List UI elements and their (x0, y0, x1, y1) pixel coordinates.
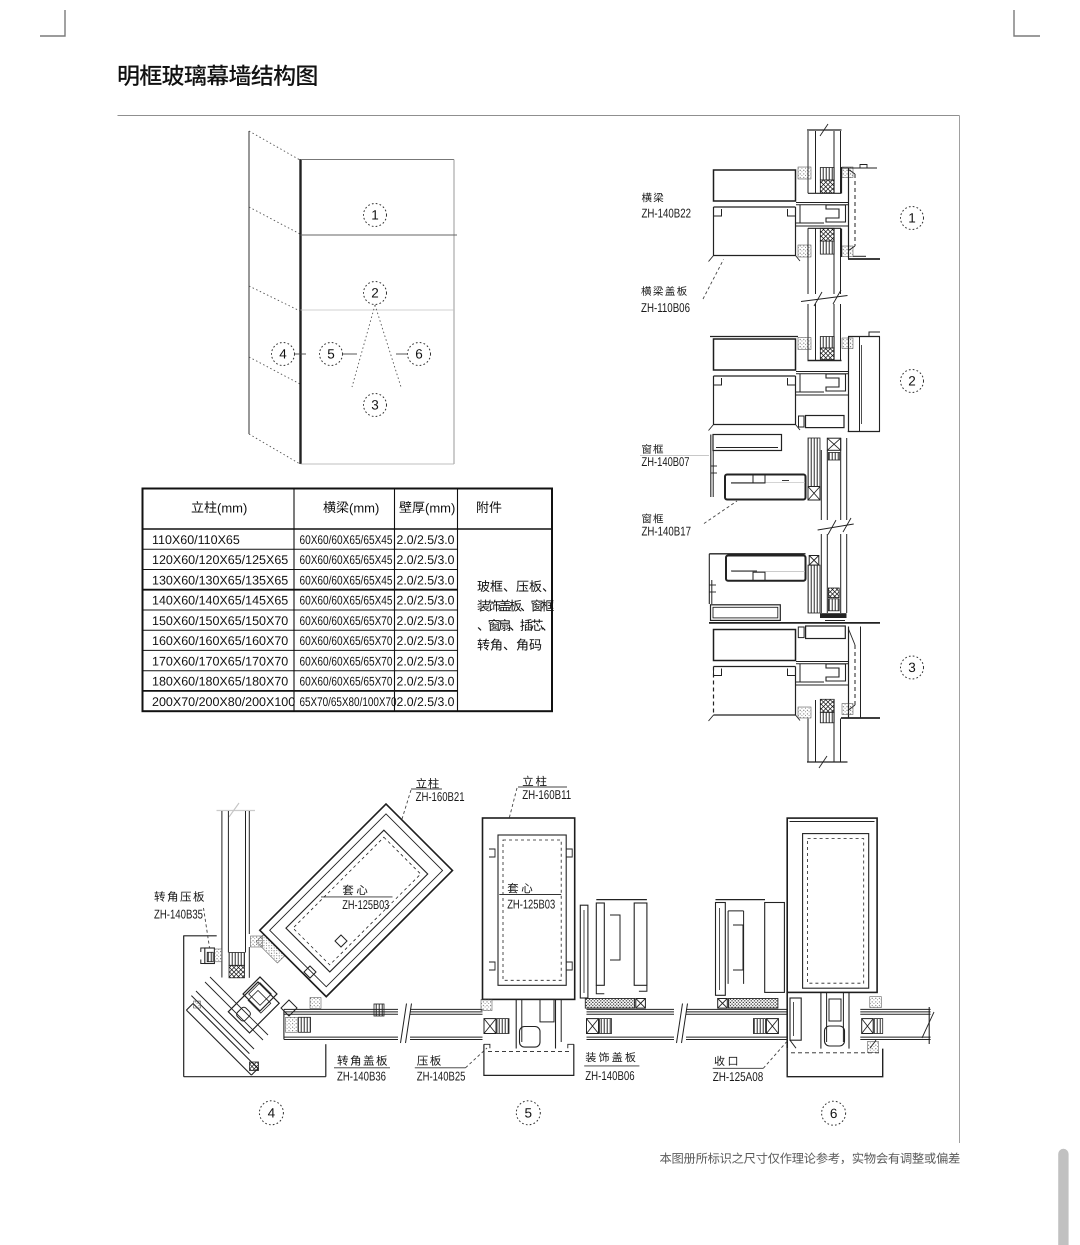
svg-text:ZH-160B11: ZH-160B11 (522, 787, 571, 802)
svg-text:ZH-125A08: ZH-125A08 (713, 1069, 764, 1084)
svg-text:1: 1 (908, 211, 916, 226)
svg-text:2.0/2.5/3.0: 2.0/2.5/3.0 (397, 573, 455, 587)
svg-text:ZH-160B21: ZH-160B21 (416, 789, 465, 804)
svg-text:180X60/180X65/180X70: 180X60/180X65/180X70 (152, 675, 288, 689)
svg-text:2: 2 (371, 286, 379, 301)
svg-text:ZH-140B35: ZH-140B35 (154, 907, 203, 922)
svg-text:ZH-140B25: ZH-140B25 (417, 1069, 466, 1084)
svg-text:ZH-140B07: ZH-140B07 (642, 454, 690, 469)
svg-text:110X60/110X65: 110X60/110X65 (152, 533, 240, 547)
svg-text:2.0/2.5/3.0: 2.0/2.5/3.0 (397, 675, 455, 689)
svg-text:ZH-125B03: ZH-125B03 (507, 897, 555, 912)
svg-text:60X60/60X65/65X45: 60X60/60X65/65X45 (300, 573, 393, 587)
svg-text:60X60/60X65/65X45: 60X60/60X65/65X45 (300, 553, 393, 567)
svg-text:2.0/2.5/3.0: 2.0/2.5/3.0 (397, 594, 455, 608)
svg-text:4: 4 (279, 347, 287, 362)
svg-text:140X60/140X65/145X65: 140X60/140X65/145X65 (152, 594, 288, 608)
svg-text:200X70/200X80/200X100: 200X70/200X80/200X100 (152, 695, 295, 709)
svg-text:160X60/160X65/160X70: 160X60/160X65/160X70 (152, 634, 288, 648)
svg-text:60X60/60X65/65X70: 60X60/60X65/65X70 (300, 675, 393, 689)
svg-text:4: 4 (268, 1105, 276, 1120)
svg-text:60X60/60X65/65X70: 60X60/60X65/65X70 (300, 614, 393, 628)
svg-text:ZH-125B03: ZH-125B03 (342, 897, 389, 912)
svg-text:2: 2 (908, 374, 916, 389)
svg-text:2.0/2.5/3.0: 2.0/2.5/3.0 (397, 614, 455, 628)
svg-text:2.0/2.5/3.0: 2.0/2.5/3.0 (397, 634, 455, 648)
svg-text:2.0/2.5/3.0: 2.0/2.5/3.0 (397, 654, 455, 668)
svg-text:5: 5 (525, 1105, 533, 1120)
svg-text:130X60/130X65/135X65: 130X60/130X65/135X65 (152, 573, 288, 587)
svg-text:2.0/2.5/3.0: 2.0/2.5/3.0 (397, 533, 455, 547)
svg-text:120X60/120X65/125X65: 120X60/120X65/125X65 (152, 553, 288, 567)
svg-text:60X60/60X65/65X70: 60X60/60X65/65X70 (300, 634, 393, 648)
svg-text:60X60/60X65/65X45: 60X60/60X65/65X45 (300, 533, 393, 547)
svg-text:ZH-110B06: ZH-110B06 (641, 300, 690, 315)
svg-text:6: 6 (415, 347, 423, 362)
svg-text:2.0/2.5/3.0: 2.0/2.5/3.0 (397, 695, 455, 709)
svg-text:ZH-140B22: ZH-140B22 (642, 205, 692, 220)
svg-text:ZH-140B36: ZH-140B36 (337, 1069, 386, 1084)
svg-text:3: 3 (908, 660, 916, 675)
svg-text:150X60/150X65/150X70: 150X60/150X65/150X70 (152, 614, 288, 628)
svg-text:(mm): (mm) (425, 501, 455, 516)
svg-text:3: 3 (371, 398, 379, 413)
svg-text:ZH-140B06: ZH-140B06 (585, 1068, 634, 1083)
svg-text:6: 6 (830, 1106, 838, 1121)
svg-text:170X60/170X65/170X70: 170X60/170X65/170X70 (152, 654, 288, 668)
svg-text:(mm): (mm) (217, 501, 247, 516)
svg-text:1: 1 (371, 208, 379, 223)
svg-text:60X60/60X65/65X70: 60X60/60X65/65X70 (300, 654, 393, 668)
svg-text:65X70/65X80/100X70: 65X70/65X80/100X70 (300, 695, 397, 709)
svg-text:2.0/2.5/3.0: 2.0/2.5/3.0 (397, 553, 455, 567)
svg-text:(mm): (mm) (349, 501, 379, 516)
svg-text:ZH-140B17: ZH-140B17 (642, 524, 692, 539)
svg-text:5: 5 (327, 347, 335, 362)
svg-text:60X60/60X65/65X45: 60X60/60X65/65X45 (300, 594, 393, 608)
